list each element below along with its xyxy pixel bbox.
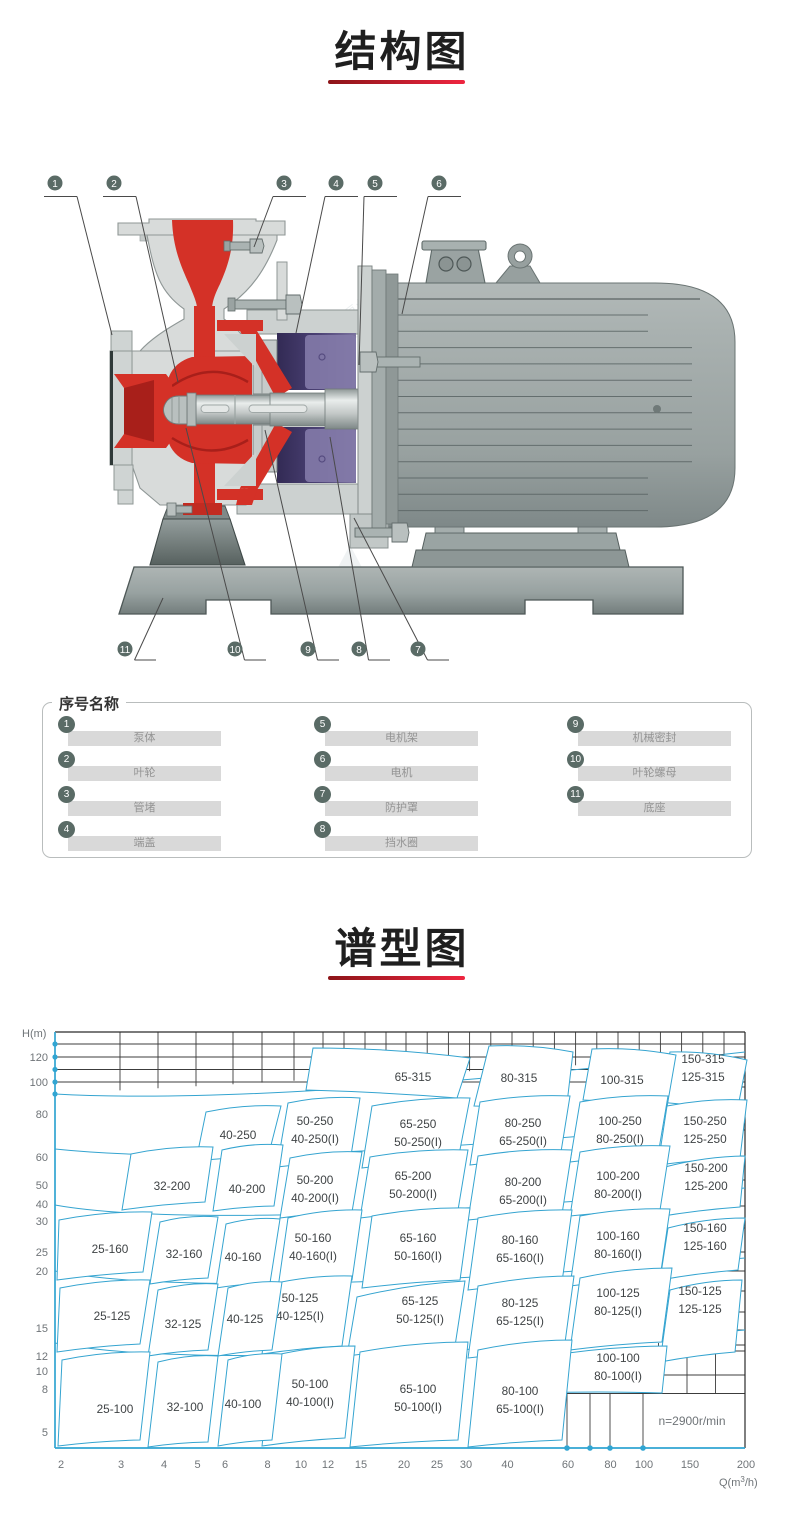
svg-text:100-315: 100-315 xyxy=(600,1073,644,1087)
svg-text:80-315: 80-315 xyxy=(501,1071,538,1085)
svg-text:8: 8 xyxy=(42,1384,48,1396)
svg-text:7: 7 xyxy=(415,645,421,656)
svg-text:32-100: 32-100 xyxy=(167,1400,204,1414)
svg-text:125-125: 125-125 xyxy=(678,1302,722,1316)
svg-text:150-125: 150-125 xyxy=(678,1284,722,1298)
svg-text:120: 120 xyxy=(30,1052,48,1064)
svg-text:25-160: 25-160 xyxy=(92,1242,129,1256)
svg-text:12: 12 xyxy=(322,1459,334,1471)
svg-text:10: 10 xyxy=(36,1366,48,1378)
svg-text:65-100(I): 65-100(I) xyxy=(496,1402,544,1416)
svg-text:80-100(I): 80-100(I) xyxy=(594,1369,642,1383)
svg-text:60: 60 xyxy=(562,1459,574,1471)
svg-text:10: 10 xyxy=(295,1459,307,1471)
svg-text:40-160(I): 40-160(I) xyxy=(289,1249,337,1263)
svg-text:30: 30 xyxy=(36,1216,48,1228)
svg-text:50-160(I): 50-160(I) xyxy=(394,1249,442,1263)
svg-text:2: 2 xyxy=(58,1459,64,1471)
svg-text:60: 60 xyxy=(36,1152,48,1164)
svg-text:65-315: 65-315 xyxy=(395,1070,432,1084)
svg-text:80-160: 80-160 xyxy=(502,1233,539,1247)
svg-text:80-125: 80-125 xyxy=(502,1296,539,1310)
svg-text:10: 10 xyxy=(229,645,241,656)
svg-text:125-160: 125-160 xyxy=(683,1239,727,1253)
svg-text:40-125(I): 40-125(I) xyxy=(276,1309,324,1323)
svg-text:40-250: 40-250 xyxy=(220,1128,257,1142)
svg-text:9: 9 xyxy=(305,645,311,656)
svg-text:100-250: 100-250 xyxy=(598,1114,642,1128)
svg-text:65-250(I): 65-250(I) xyxy=(499,1134,547,1148)
svg-text:125-250: 125-250 xyxy=(683,1132,727,1146)
svg-text:80-250(I): 80-250(I) xyxy=(596,1132,644,1146)
svg-text:125-200: 125-200 xyxy=(684,1179,728,1193)
svg-text:200: 200 xyxy=(737,1459,755,1471)
svg-text:15: 15 xyxy=(355,1459,367,1471)
svg-text:65-160(I): 65-160(I) xyxy=(496,1251,544,1265)
svg-text:5: 5 xyxy=(42,1427,48,1439)
svg-text:6: 6 xyxy=(222,1459,228,1471)
svg-text:50-200: 50-200 xyxy=(297,1173,334,1187)
svg-text:100: 100 xyxy=(30,1077,48,1089)
svg-text:50-125: 50-125 xyxy=(282,1291,319,1305)
svg-text:n=2900r/min: n=2900r/min xyxy=(658,1414,725,1428)
svg-text:4: 4 xyxy=(333,179,339,190)
svg-text:3: 3 xyxy=(281,179,287,190)
svg-text:80-160(I): 80-160(I) xyxy=(594,1247,642,1261)
svg-text:80: 80 xyxy=(36,1109,48,1121)
svg-text:40: 40 xyxy=(501,1459,513,1471)
svg-text:40-200: 40-200 xyxy=(229,1182,266,1196)
svg-text:25-100: 25-100 xyxy=(97,1402,134,1416)
svg-text:6: 6 xyxy=(436,179,442,190)
svg-text:20: 20 xyxy=(36,1266,48,1278)
svg-text:50-100(I): 50-100(I) xyxy=(394,1400,442,1414)
svg-text:15: 15 xyxy=(36,1323,48,1335)
svg-text:40: 40 xyxy=(36,1199,48,1211)
svg-text:8: 8 xyxy=(356,645,362,656)
svg-text:100-160: 100-160 xyxy=(596,1229,640,1243)
svg-text:150-315: 150-315 xyxy=(681,1052,725,1066)
svg-text:65-125: 65-125 xyxy=(402,1294,439,1308)
svg-text:150-160: 150-160 xyxy=(683,1221,727,1235)
svg-text:50-250: 50-250 xyxy=(297,1114,334,1128)
svg-text:40-200(I): 40-200(I) xyxy=(291,1191,339,1205)
svg-text:H(m): H(m) xyxy=(22,1028,46,1040)
svg-text:100-100: 100-100 xyxy=(596,1351,640,1365)
svg-text:40-250(I): 40-250(I) xyxy=(291,1132,339,1146)
svg-text:80-100: 80-100 xyxy=(502,1384,539,1398)
svg-text:Q(m3/h): Q(m3/h) xyxy=(719,1475,758,1489)
svg-text:65-200: 65-200 xyxy=(395,1169,432,1183)
svg-text:80-125(I): 80-125(I) xyxy=(594,1304,642,1318)
svg-text:25: 25 xyxy=(36,1247,48,1259)
svg-text:4: 4 xyxy=(161,1459,167,1471)
svg-text:30: 30 xyxy=(460,1459,472,1471)
svg-text:50-100: 50-100 xyxy=(292,1377,329,1391)
svg-text:65-250: 65-250 xyxy=(400,1117,437,1131)
svg-text:25: 25 xyxy=(431,1459,443,1471)
svg-text:5: 5 xyxy=(194,1459,200,1471)
svg-text:125-315: 125-315 xyxy=(681,1070,725,1084)
svg-text:32-125: 32-125 xyxy=(165,1317,202,1331)
svg-text:40-125: 40-125 xyxy=(227,1312,264,1326)
svg-text:100-125: 100-125 xyxy=(596,1286,640,1300)
svg-text:50-250(I): 50-250(I) xyxy=(394,1135,442,1149)
svg-text:100: 100 xyxy=(635,1459,653,1471)
svg-text:25-125: 25-125 xyxy=(94,1309,131,1323)
svg-text:50-160: 50-160 xyxy=(295,1231,332,1245)
svg-text:40-160: 40-160 xyxy=(225,1250,262,1264)
svg-text:50: 50 xyxy=(36,1180,48,1192)
svg-text:40-100(I): 40-100(I) xyxy=(286,1395,334,1409)
svg-text:65-160: 65-160 xyxy=(400,1231,437,1245)
svg-text:2: 2 xyxy=(111,179,117,190)
svg-text:20: 20 xyxy=(398,1459,410,1471)
svg-text:150-250: 150-250 xyxy=(683,1114,727,1128)
svg-text:1: 1 xyxy=(52,179,58,190)
svg-text:5: 5 xyxy=(372,179,378,190)
svg-text:65-200(I): 65-200(I) xyxy=(499,1193,547,1207)
svg-text:32-160: 32-160 xyxy=(166,1247,203,1261)
svg-text:65-125(I): 65-125(I) xyxy=(496,1314,544,1328)
svg-text:11: 11 xyxy=(120,645,131,656)
svg-text:80-200(I): 80-200(I) xyxy=(594,1187,642,1201)
svg-text:40-100: 40-100 xyxy=(225,1397,262,1411)
svg-text:80-250: 80-250 xyxy=(505,1116,542,1130)
svg-text:50-200(I): 50-200(I) xyxy=(389,1187,437,1201)
svg-text:8: 8 xyxy=(264,1459,270,1471)
svg-text:150-200: 150-200 xyxy=(684,1161,728,1175)
svg-text:150: 150 xyxy=(681,1459,699,1471)
svg-text:65-100: 65-100 xyxy=(400,1382,437,1396)
svg-text:32-200: 32-200 xyxy=(154,1179,191,1193)
svg-text:12: 12 xyxy=(36,1351,48,1363)
svg-text:3: 3 xyxy=(118,1459,124,1471)
svg-text:80-200: 80-200 xyxy=(505,1175,542,1189)
svg-text:50-125(I): 50-125(I) xyxy=(396,1312,444,1326)
svg-text:100-200: 100-200 xyxy=(596,1169,640,1183)
svg-text:80: 80 xyxy=(604,1459,616,1471)
